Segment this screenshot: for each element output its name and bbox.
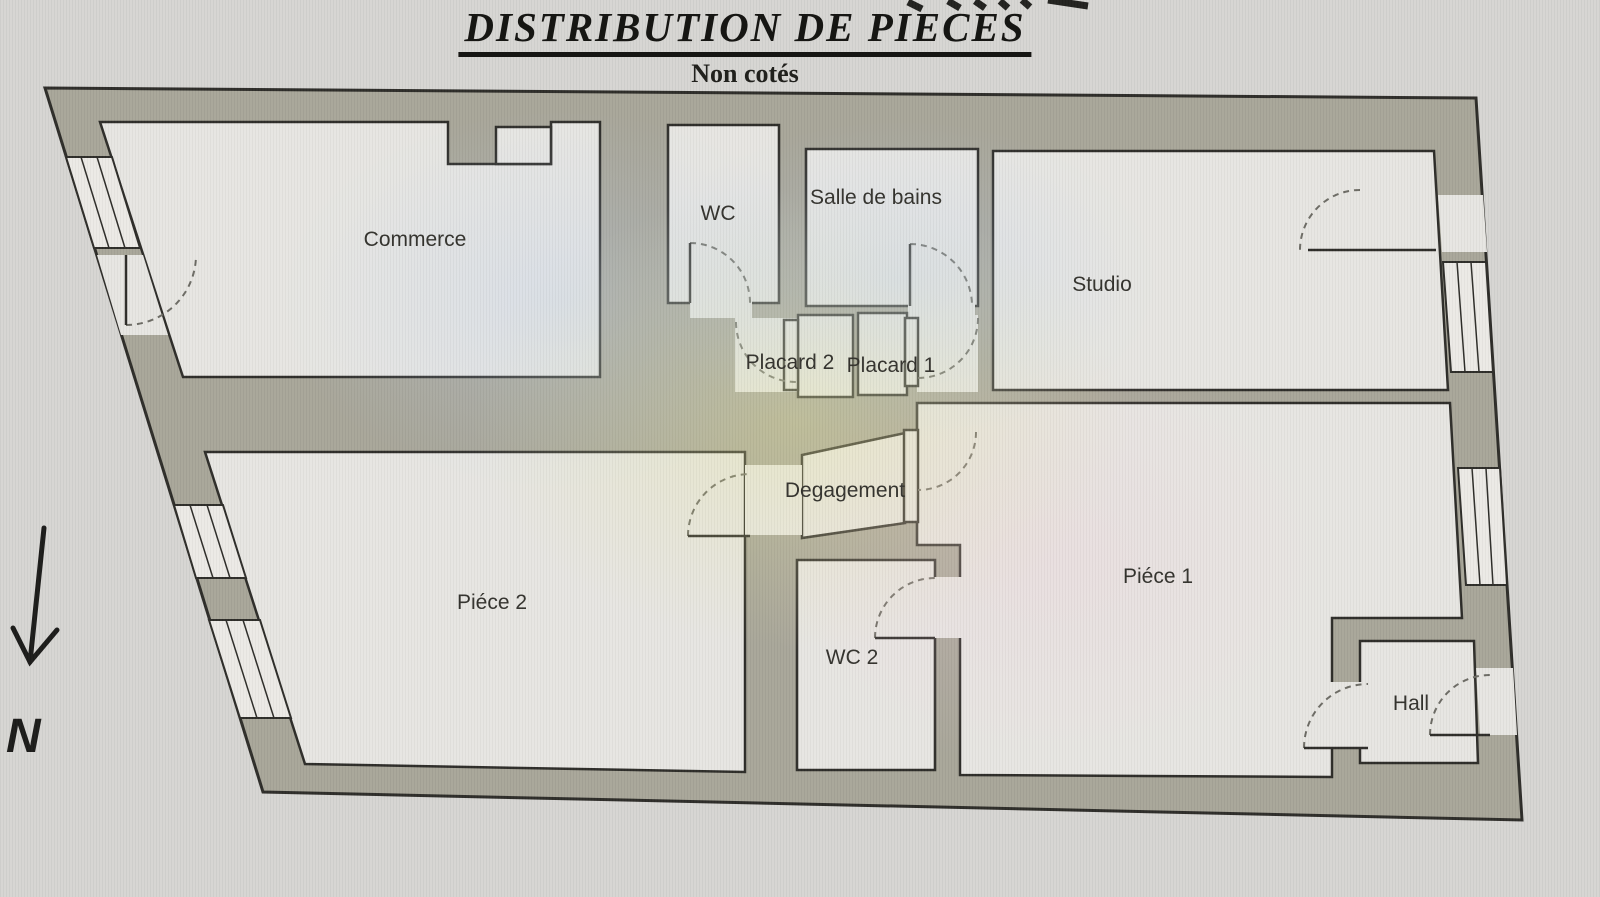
north-arrow [13, 528, 57, 662]
room-label-placard-2: Placard 2 [746, 351, 835, 374]
room-label-wc-2: WC 2 [826, 646, 879, 669]
room-label-studio: Studio [1072, 273, 1132, 296]
room-label-wc: WC [701, 202, 736, 225]
window [1443, 262, 1493, 372]
floor-plan-drawing: Commerce WC Salle de bains Studio Placar… [0, 0, 1600, 897]
north-label: N [6, 710, 42, 763]
door-opening [930, 577, 962, 638]
room-label-commerce: Commerce [364, 228, 467, 251]
page-title: DISTRIBUTION DE PIECES [458, 6, 1031, 57]
door-opening [908, 296, 975, 318]
room-studio [993, 151, 1448, 390]
door-opening [1329, 682, 1363, 748]
top-wall-recess [496, 127, 551, 164]
room-label-placard-1: Placard 1 [847, 354, 936, 377]
north-arrow-shaft [30, 528, 44, 662]
door-opening [1476, 668, 1517, 735]
window [1458, 468, 1507, 585]
room-label-piece-2: Piéce 2 [457, 591, 527, 614]
room-label-hall: Hall [1393, 692, 1429, 715]
plan-header: DISTRIBUTION DE PIECES Non cotés [458, 6, 1031, 89]
room-label-salle-de-bains: Salle de bains [810, 186, 942, 209]
door-opening [690, 294, 752, 318]
door-leaf [904, 430, 918, 522]
floor-plan-page: { "header": { "title": "DISTRIBUTION DE … [0, 0, 1600, 897]
room-label-piece-1: Piéce 1 [1123, 565, 1193, 588]
room-salle-de-bains [806, 149, 978, 306]
page-subtitle: Non cotés [458, 59, 1031, 89]
door-opening [1438, 195, 1487, 252]
room-label-degagement: Degagement [785, 479, 905, 502]
